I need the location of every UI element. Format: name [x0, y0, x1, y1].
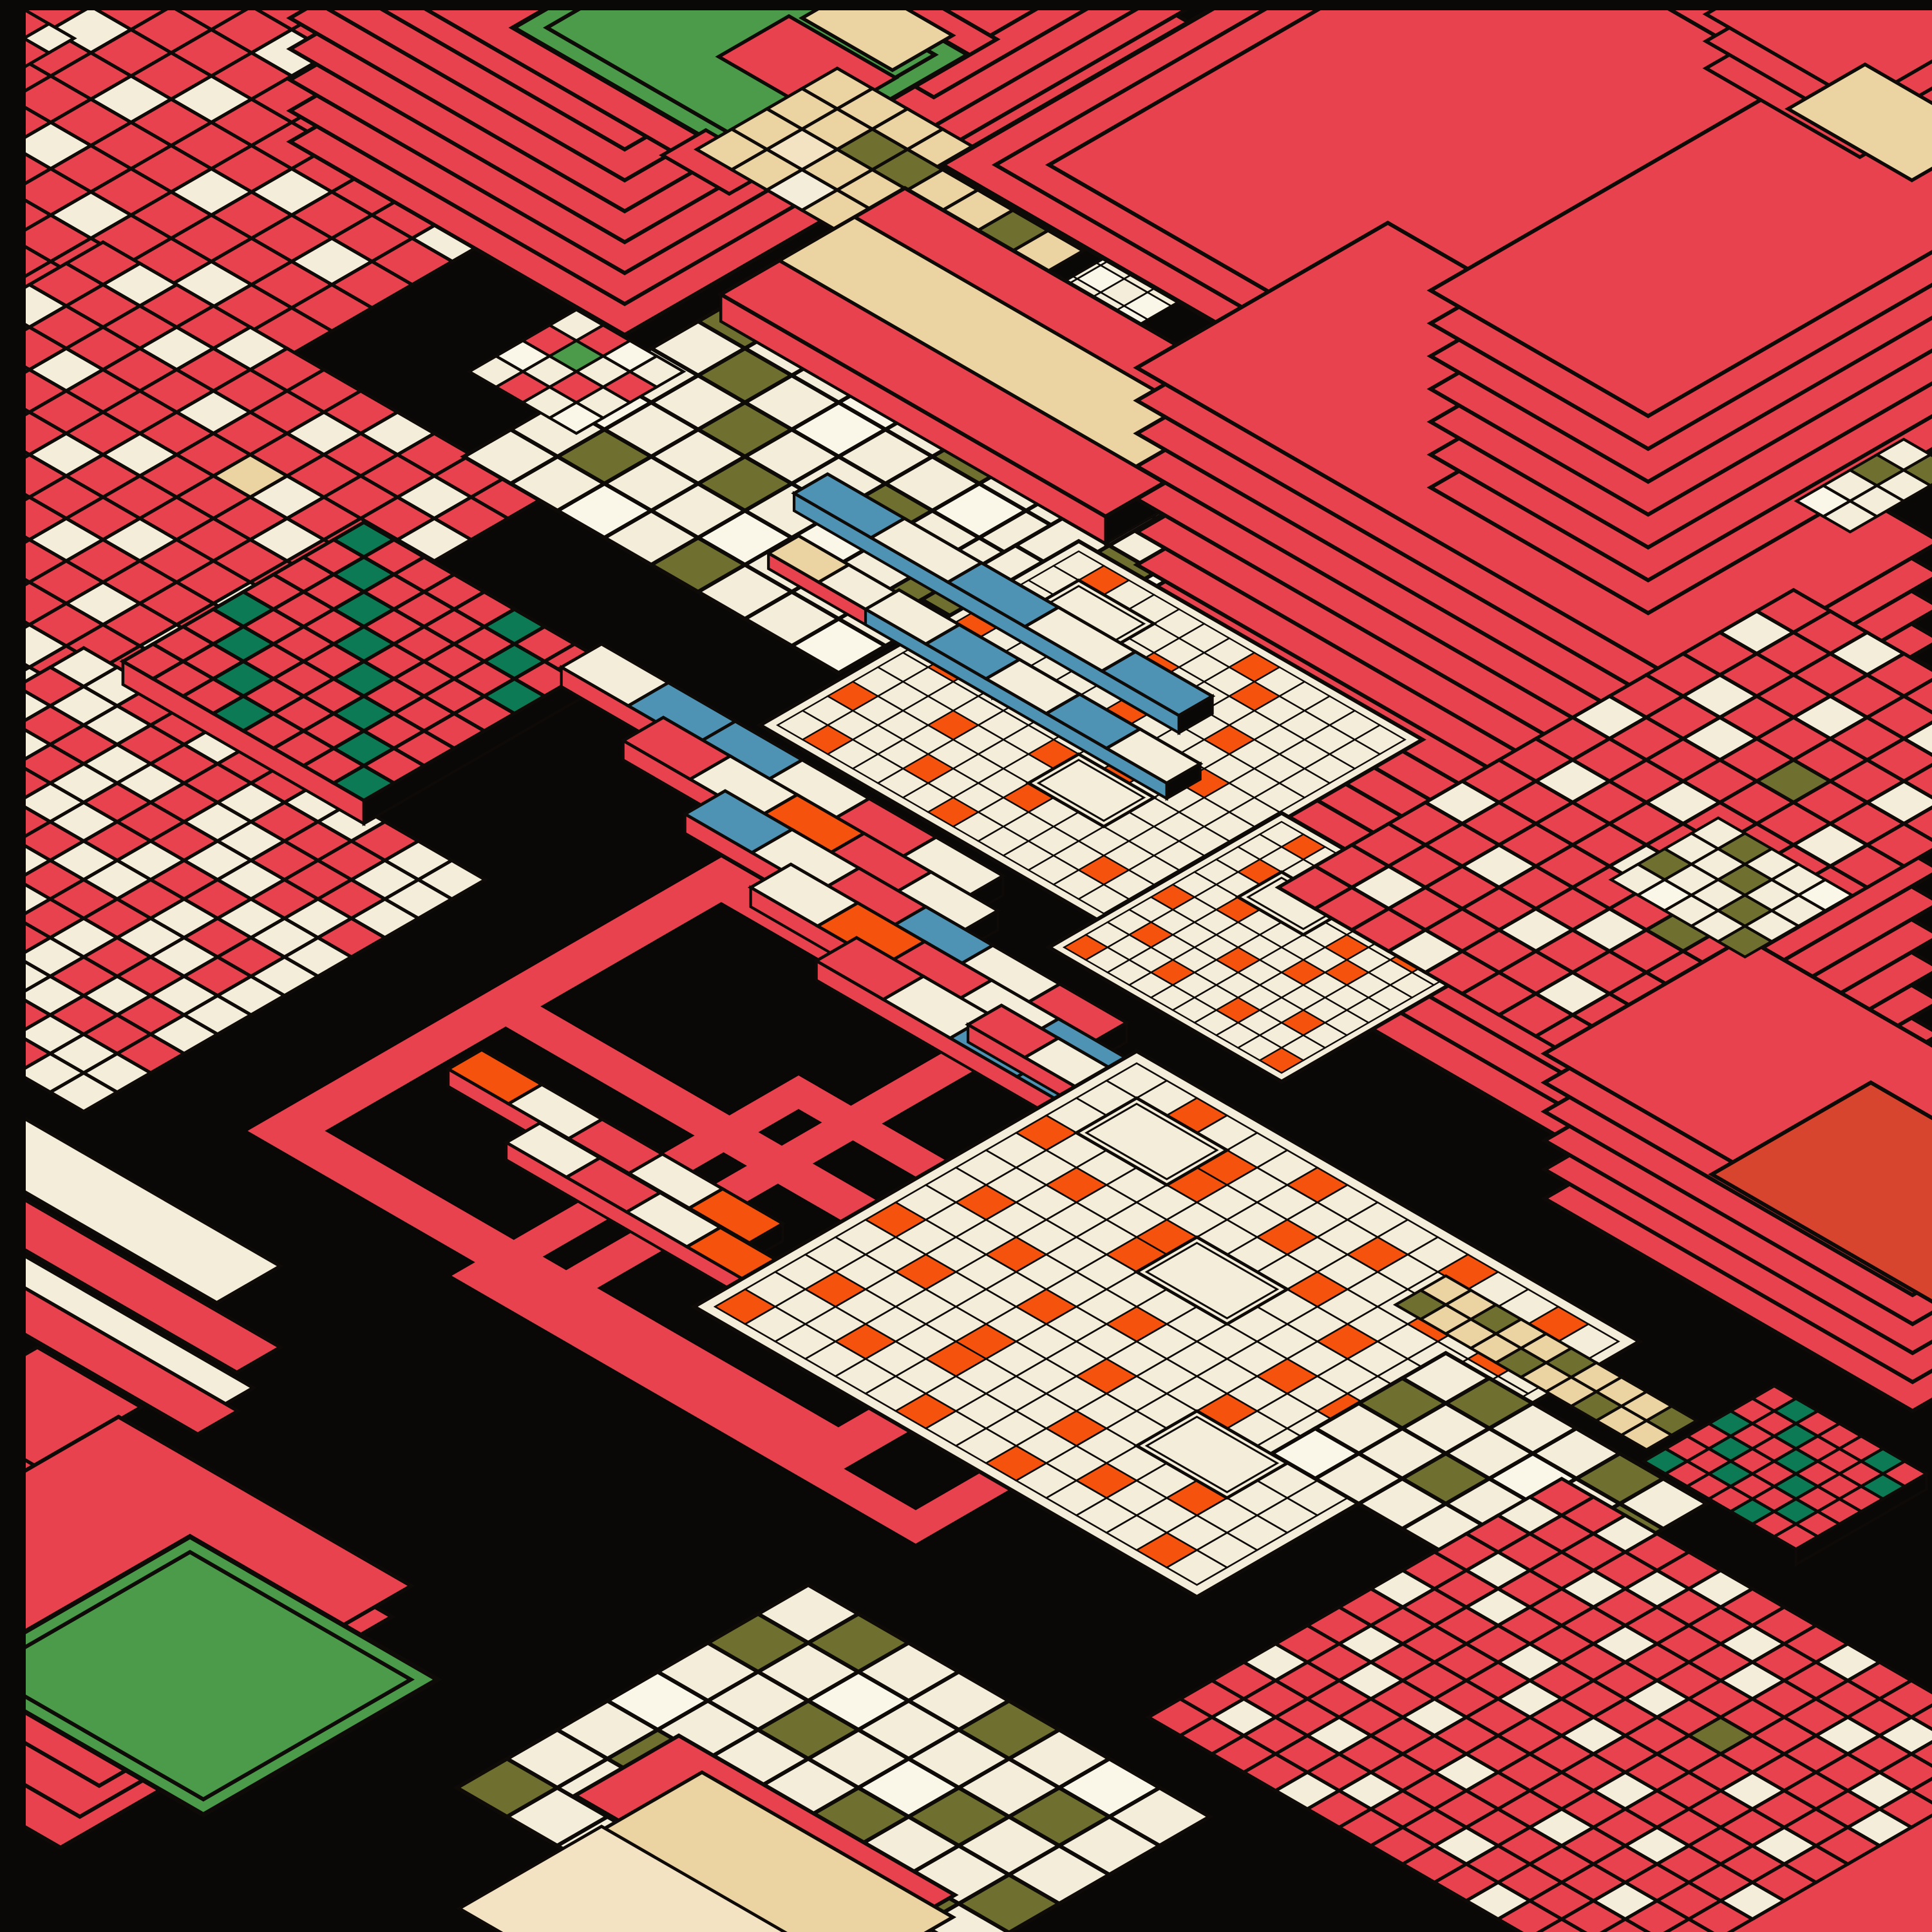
generative-isometric-artwork [26, 10, 1932, 1932]
artwork-canvas [26, 10, 1932, 1932]
